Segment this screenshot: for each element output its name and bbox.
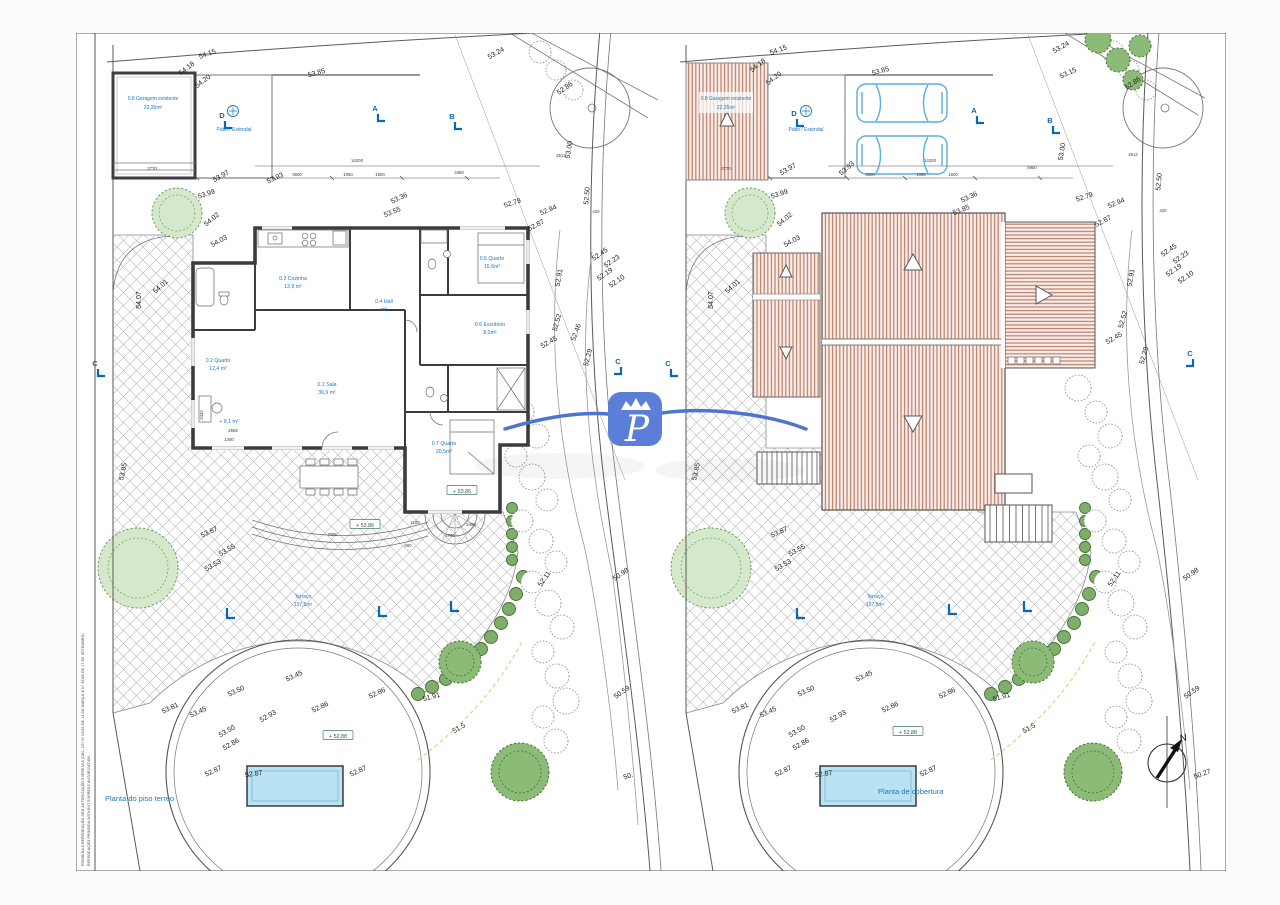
blue-label: Pátio / Estendal [216, 127, 251, 133]
spot-elevation-value: + 52.88 [329, 734, 347, 740]
right-plan-title: Planta de cobertura [878, 787, 944, 796]
dimension-label: 3600 [865, 172, 875, 177]
blue-label: 22,26m² [717, 105, 736, 111]
section-marker-letter: A [971, 106, 977, 115]
dimension-label: 1100 [410, 520, 420, 525]
dimension-label: 2432 [199, 410, 204, 420]
room-label: 0.3 Cozinha [279, 276, 307, 282]
dimension-label: 2612 [556, 153, 566, 158]
blue-label: Pátio / Estendal [788, 127, 823, 133]
site-plan-drawing: 0.8 Garagem existente22,26m²Pátio / Este… [0, 0, 1280, 905]
kitchen-fixtures [258, 230, 348, 247]
dimension-label: 1500 [948, 172, 958, 177]
dimension-label: 14200 [351, 158, 364, 163]
dimension-label: 1400 [224, 437, 234, 442]
section-marker-letter: D [219, 111, 225, 120]
spot-elevation-value: + 53.86 [356, 523, 374, 529]
section-marker-letter: D [791, 109, 797, 118]
blue-label: Terraço [295, 594, 312, 600]
right-plan-elevation-boxes: + 52.88 [893, 727, 923, 737]
copyright-notice: PROIBIDA A REPRODUÇÃO SEM AUTORIZAÇÃO EX… [80, 633, 85, 866]
pergola-slats [985, 505, 1052, 542]
dimension-label: 5950 [1027, 165, 1037, 170]
room-label: 0.1 Sala [317, 382, 336, 388]
room-label: + 8,1 m² [219, 419, 238, 425]
room-label: 0.2 Quarto [206, 358, 231, 364]
room-label: 0.6 Escritório [475, 322, 505, 328]
room-label: 12,9 m² [284, 284, 302, 290]
dimension-label: 2659 [228, 428, 238, 433]
dimension-label: 4700 [445, 533, 455, 538]
existing-garage [113, 73, 195, 178]
dimension-label: 2612 [1128, 152, 1138, 157]
copyright-notice-2: REPRODUÇÃO PROIBIDA WITHOUT EXPRESS AUTO… [86, 755, 91, 866]
dimension-label: 3450 [454, 170, 464, 175]
blue-label: 137,5m² [866, 602, 885, 608]
section-marker-letter: C [1187, 349, 1193, 358]
room-label: 15,6m² [484, 264, 500, 270]
section-marker-letter: B [449, 112, 455, 121]
section-marker-letter: B [1047, 116, 1053, 125]
dimension-label: 420 [592, 209, 600, 214]
chimney [995, 474, 1032, 493]
terrace-table [300, 459, 358, 495]
dimension-label: 2400 [466, 522, 476, 527]
blue-label: 22,26m² [144, 105, 163, 111]
garage-roof [686, 63, 768, 180]
dimension-label: 400 [404, 543, 412, 548]
blue-label: 0.8 Garagem existente [128, 96, 179, 102]
room-label: 36,9 m² [318, 390, 336, 396]
section-marker-letter: A [372, 104, 378, 113]
blue-label: 0.8 Garagem existente [701, 96, 752, 102]
elevation-label: 54.07 [708, 291, 715, 309]
section-marker-letter: C [92, 359, 98, 368]
room-label: m² [381, 307, 387, 313]
room-label: 12,4 m² [209, 366, 227, 372]
dimension-label: 14200 [924, 158, 937, 163]
spot-elevation-value: + 53.86 [453, 489, 471, 495]
blue-label: Terraço [867, 594, 884, 600]
dimension-label: 3600 [292, 172, 302, 177]
left-plan-title: Planta do piso terreo [105, 794, 174, 803]
dimension-label: 7005 [327, 532, 337, 537]
room-label: 0.7 Quarto [432, 441, 457, 447]
spot-elevation-value: + 52.88 [899, 730, 917, 736]
dimension-label: 420 [1159, 208, 1167, 213]
dimension-label: 2770 [147, 166, 157, 171]
dimension-label: 1500 [375, 172, 385, 177]
dimension-label: 1050 [343, 172, 353, 177]
room-label: 20,5m² [436, 449, 452, 455]
room-label: 0.5 Quarto [480, 256, 505, 262]
room-label: 8,0m² [483, 330, 497, 336]
blue-label: 137,5m² [294, 602, 313, 608]
room-label: 0.4 Hall [375, 299, 393, 305]
scanned-drawing-sheet: 0.8 Garagem existente22,26m²Pátio / Este… [0, 0, 1280, 905]
dimension-label: 1050 [916, 172, 926, 177]
logo-letter: P [624, 409, 650, 450]
elevation-label: 54.07 [136, 291, 143, 309]
watermark-logo: P [608, 392, 662, 450]
section-marker-letter: C [665, 359, 671, 368]
dimension-label: 2770 [721, 166, 731, 171]
section-marker-letter: C [615, 357, 621, 366]
